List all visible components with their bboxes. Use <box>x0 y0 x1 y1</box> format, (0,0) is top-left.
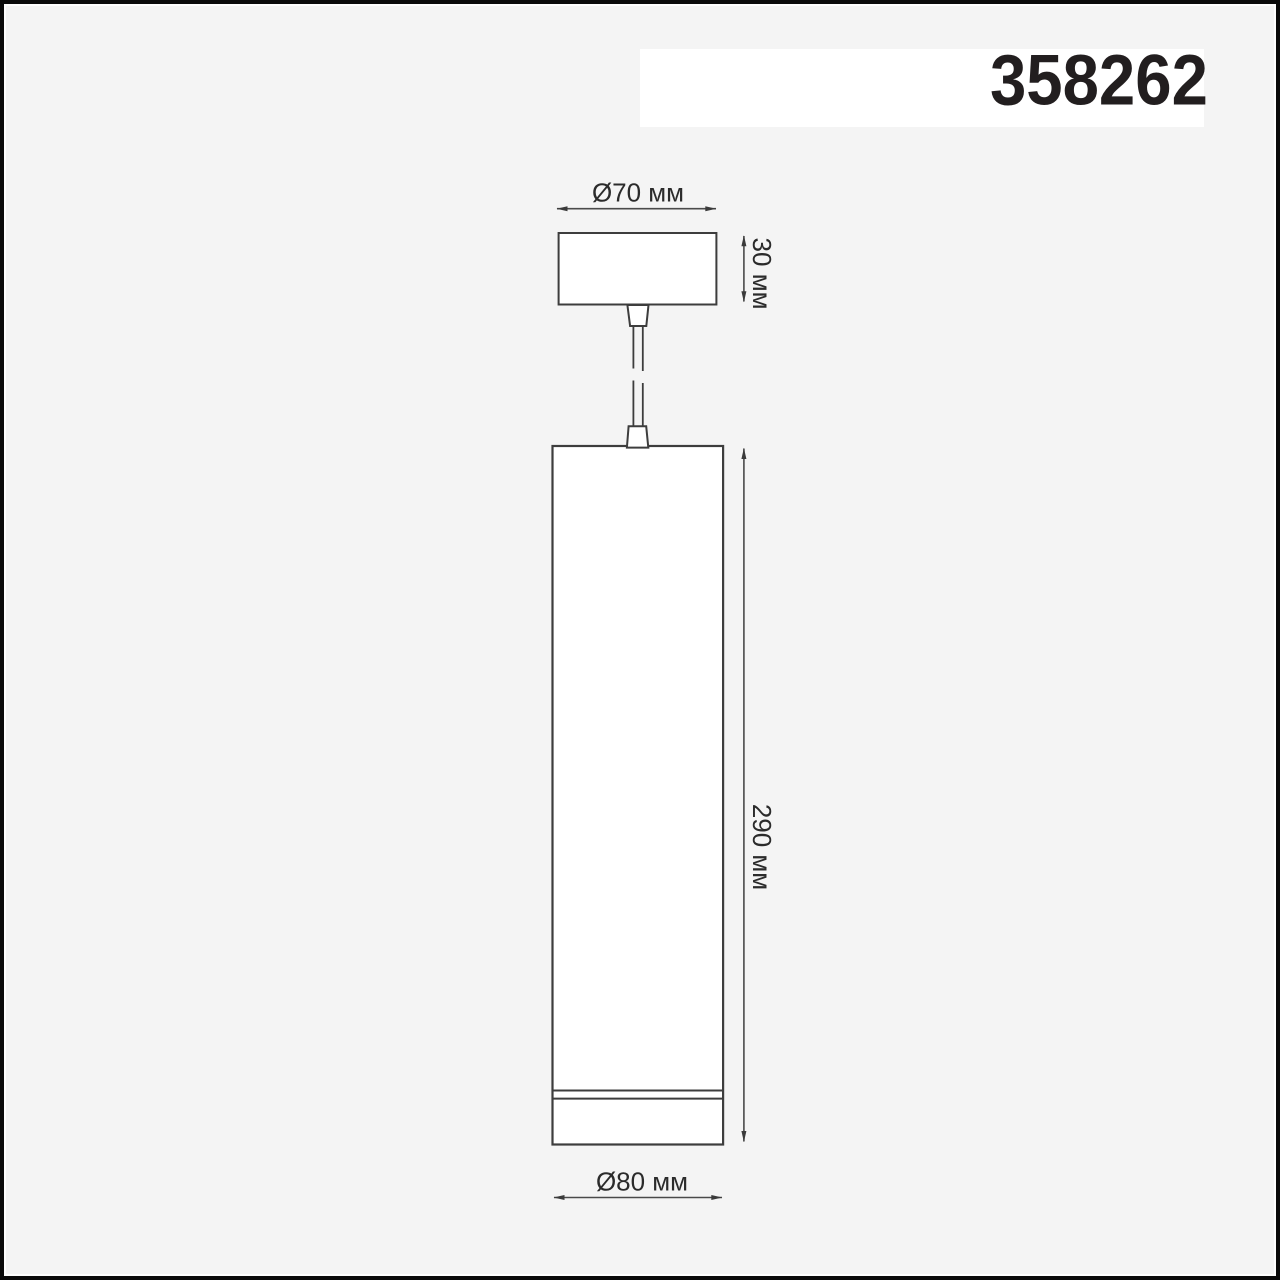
svg-text:Ø80 мм: Ø80 мм <box>596 1167 688 1197</box>
svg-text:30 мм: 30 мм <box>747 238 777 310</box>
svg-text:Ø70 мм: Ø70 мм <box>592 178 684 208</box>
svg-text:290 мм: 290 мм <box>747 804 777 890</box>
